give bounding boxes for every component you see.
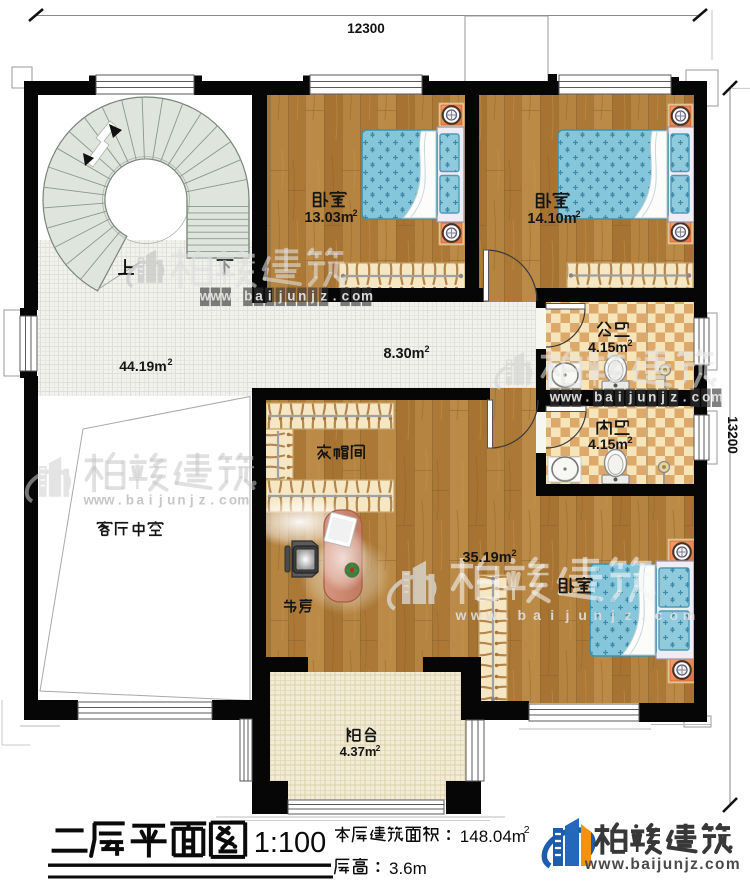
svg-text:2: 2 [627, 338, 632, 348]
svg-text:w: w [199, 289, 211, 304]
svg-text:m: m [361, 289, 373, 304]
svg-text:j: j [610, 607, 615, 623]
svg-text:o: o [352, 289, 360, 304]
svg-text:n: n [298, 289, 306, 304]
svg-text:14.10m: 14.10m [527, 211, 576, 227]
svg-text:o: o [670, 607, 679, 623]
svg-text:44.19m: 44.19m [119, 358, 166, 374]
svg-text:w: w [220, 289, 232, 304]
svg-text:b: b [126, 493, 134, 508]
svg-text:a: a [255, 289, 263, 304]
svg-text:.: . [118, 493, 122, 508]
svg-text:.: . [210, 493, 214, 508]
svg-text:u: u [287, 289, 295, 304]
svg-text:m: m [711, 390, 723, 405]
svg-text:w: w [455, 607, 467, 623]
svg-text:n: n [648, 390, 656, 405]
svg-text:j: j [564, 607, 569, 623]
svg-text:4.15m: 4.15m [588, 339, 628, 355]
svg-text:35.19m: 35.19m [462, 550, 511, 566]
svg-text:2: 2 [575, 209, 580, 219]
svg-text:w: w [549, 390, 561, 405]
svg-text:2: 2 [376, 743, 381, 753]
svg-text:u: u [167, 493, 175, 508]
svg-text:j: j [189, 493, 194, 508]
svg-text:j: j [660, 390, 665, 405]
svg-text:z: z [625, 607, 632, 623]
svg-text:w: w [470, 607, 482, 623]
svg-text:z: z [670, 390, 677, 405]
svg-text:.: . [333, 289, 337, 304]
svg-text:a: a [533, 607, 541, 623]
svg-text:w: w [570, 390, 582, 405]
svg-text:w: w [83, 493, 95, 508]
svg-text:z: z [199, 493, 206, 508]
svg-text:n: n [177, 493, 185, 508]
svg-text:b: b [244, 289, 252, 304]
svg-text:j: j [628, 390, 633, 405]
svg-text:w: w [210, 289, 222, 304]
svg-text:u: u [578, 607, 587, 623]
svg-text:.: . [641, 607, 645, 623]
svg-text:2: 2 [524, 824, 530, 836]
svg-text:w: w [560, 390, 572, 405]
svg-text:z: z [320, 289, 327, 304]
svg-text:3.6m: 3.6m [389, 859, 427, 878]
svg-text:b: b [518, 607, 527, 623]
svg-text:n: n [594, 607, 603, 623]
svg-text:2: 2 [627, 435, 632, 445]
svg-text:i: i [149, 493, 153, 508]
svg-text:c: c [219, 493, 227, 508]
svg-text:www.baijunjz.com: www.baijunjz.com [584, 856, 741, 873]
svg-text:.: . [586, 390, 590, 405]
svg-text:i: i [618, 390, 622, 405]
svg-text:.: . [505, 607, 509, 623]
svg-text:.: . [236, 289, 240, 304]
svg-text:2: 2 [511, 548, 516, 558]
svg-text:1:100: 1:100 [254, 827, 327, 859]
svg-text:w: w [93, 493, 105, 508]
svg-text:a: a [605, 390, 613, 405]
svg-text:4.15m: 4.15m [588, 436, 628, 452]
svg-text:m: m [683, 607, 695, 623]
svg-text:o: o [702, 390, 710, 405]
svg-text:i: i [550, 607, 554, 623]
svg-text:2: 2 [352, 208, 357, 218]
svg-text:j: j [158, 493, 163, 508]
svg-text:12300: 12300 [347, 21, 385, 36]
svg-text:j: j [310, 289, 315, 304]
svg-text:c: c [342, 289, 350, 304]
svg-text:148.04m: 148.04m [460, 827, 526, 846]
svg-text:a: a [136, 493, 144, 508]
svg-text:w: w [485, 607, 497, 623]
svg-text:c: c [655, 607, 663, 623]
svg-text:u: u [637, 390, 645, 405]
svg-text:c: c [692, 390, 700, 405]
svg-text:13200: 13200 [725, 416, 740, 454]
svg-text:w: w [103, 493, 115, 508]
svg-text:j: j [278, 289, 283, 304]
svg-text:8.30m: 8.30m [383, 346, 424, 362]
svg-text:4.37m: 4.37m [340, 744, 377, 759]
svg-text:2: 2 [167, 357, 172, 367]
svg-text:b: b [594, 390, 602, 405]
svg-text:13.03m: 13.03m [304, 210, 353, 226]
svg-text:.: . [683, 390, 687, 405]
svg-text:m: m [237, 493, 249, 508]
svg-text:2: 2 [424, 344, 429, 354]
svg-text:o: o [229, 493, 237, 508]
svg-text:i: i [268, 289, 272, 304]
